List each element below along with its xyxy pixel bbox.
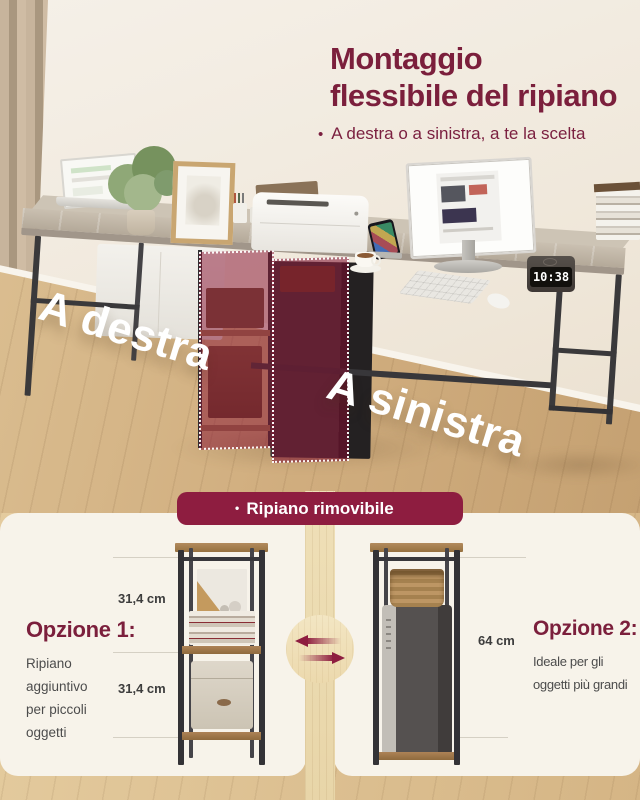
book-stack: [596, 190, 640, 240]
option2-title: Opzione 2:: [533, 617, 637, 641]
desc-line: Ripiano: [26, 652, 135, 675]
swap-arrows-icon: [286, 615, 354, 683]
middle-shelf: [182, 646, 261, 654]
measure-label-64cm: 64 cm: [478, 633, 515, 648]
feature-banner: • Ripiano rimovibile: [177, 492, 463, 525]
clock-display: 10:38: [530, 267, 572, 287]
bullet-dot: •: [318, 126, 323, 143]
measure-line: [113, 557, 183, 558]
desc-line: aggiuntivo: [26, 675, 135, 698]
desc-line: oggetti: [26, 721, 135, 744]
picture-frame: [171, 161, 236, 245]
monitor-base: [434, 260, 502, 273]
frame-crossbar: [184, 557, 259, 561]
desc-line: oggetti più grandi: [533, 673, 637, 696]
option1-text: Opzione 1: Ripiano aggiuntivo per piccol…: [26, 617, 135, 744]
measure-line: [460, 557, 526, 558]
desc-line: Ideale per gli: [533, 650, 637, 673]
option2-description: Ideale per gli oggetti più grandi: [533, 650, 637, 696]
page-title: Montaggio flessibile del ripiano: [330, 40, 636, 114]
options-section: • Ripiano rimovibile 31,4 cm 31,4 cm 64 …: [0, 513, 640, 800]
option1-title: Opzione 1:: [26, 617, 135, 643]
banner-bullet-dot: •: [235, 506, 239, 511]
digital-clock: 10:38: [527, 256, 575, 292]
arrow-left-icon: [295, 635, 343, 647]
plant-pot: [127, 210, 155, 235]
desk-crossbar: [549, 405, 613, 414]
desc-line: per piccoli: [26, 698, 135, 721]
bottom-shelf: [377, 752, 456, 760]
option1-description: Ripiano aggiuntivo per piccoli oggetti: [26, 652, 135, 744]
magazine-stack: [189, 611, 255, 645]
title-line-1: Montaggio: [330, 40, 636, 77]
wicker-basket: [390, 569, 444, 607]
desk-organizer: [197, 569, 247, 615]
coffee-cup: [355, 252, 376, 267]
option2-text: Opzione 2: Ideale per gli oggetti più gr…: [533, 617, 637, 696]
pc-tower: [382, 605, 452, 753]
product-infographic: 10:38 Montaggio flessibile del ripiano •…: [0, 0, 640, 800]
subtitle-text: A destra o a sinistra, a te la scelta: [331, 124, 585, 144]
frame-leg: [454, 550, 460, 765]
clock-charging-pad: [543, 258, 557, 266]
measure-label-top: 31,4 cm: [118, 591, 166, 606]
product-pc-column: [370, 543, 463, 765]
frame-crossbar: [379, 557, 454, 561]
subtitle: • A destra o a sinistra, a te la scelta: [318, 124, 585, 144]
title-line-2: flessibile del ripiano: [330, 77, 636, 114]
printer: [251, 192, 369, 254]
arrow-right-icon: [297, 652, 345, 664]
photo-scene: 10:38 Montaggio flessibile del ripiano •…: [0, 0, 640, 513]
product-shelf-column: [175, 543, 268, 765]
frame-leg: [373, 550, 379, 765]
bottom-shelf: [182, 732, 261, 740]
storage-box: [191, 661, 253, 729]
monitor-webpage: [436, 171, 502, 244]
pen-cup: [233, 203, 247, 223]
plant: [102, 146, 182, 220]
desk-crossbar: [553, 347, 617, 356]
banner-label: Ripiano rimovibile: [246, 499, 393, 519]
